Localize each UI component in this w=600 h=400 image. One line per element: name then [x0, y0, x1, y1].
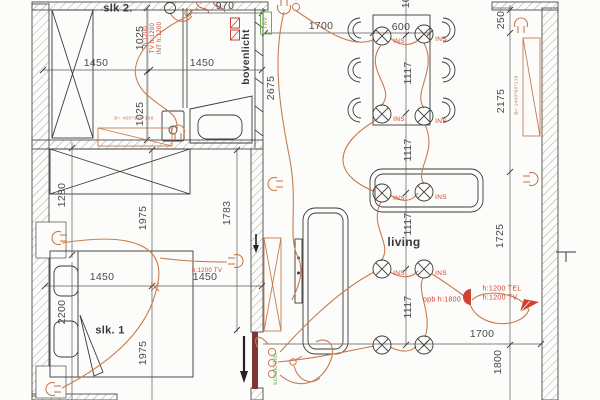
dim-1800: 1800: [493, 350, 504, 375]
convector-right: [523, 38, 540, 136]
note-tnv: TNV: [263, 17, 269, 30]
switch-corridor-top: [292, 3, 299, 10]
note-schak-dim: schak/dim: [273, 353, 280, 385]
dim-1975-a: 1975: [138, 206, 149, 231]
light-fixture-9: [373, 336, 391, 354]
dim-1700-bottom: 1700: [470, 329, 495, 340]
light-fixture-ins-3: [373, 105, 391, 123]
bovenlicht-shaft: [255, 8, 263, 148]
room-slk1-label: slk. 1: [95, 326, 124, 337]
ins-8: INS: [435, 271, 447, 278]
light-fixture-ins-5: [373, 184, 391, 202]
dim-1117-d: 1117: [403, 296, 414, 319]
electrical-cables: [62, 10, 529, 388]
wall-right: [542, 8, 558, 400]
wall-lamp-living-left: [268, 178, 283, 191]
room-living-label: living: [387, 236, 420, 248]
note-h1200-tv: h:1200 TV: [483, 295, 518, 302]
ins-7: INS: [393, 271, 405, 278]
note-slk1-tv: h:1200 TV: [192, 268, 222, 274]
dim-600: 600: [392, 22, 410, 33]
wall-lamp-top-right: [515, 18, 528, 33]
light-fixture-ins-7: [373, 260, 391, 278]
dim-1117-b: 1117: [403, 139, 414, 162]
wall-lamp-living-right: [523, 173, 538, 186]
wall-left: [32, 4, 49, 396]
ins-6: INS: [435, 195, 447, 202]
wall-middle: [32, 140, 263, 149]
dim-2175: 2175: [496, 89, 507, 114]
note-radiator-slk2: B= 400*320*149: [114, 118, 153, 123]
radiator-living: [264, 238, 281, 331]
radiators: [98, 38, 540, 331]
walls: [32, 2, 558, 400]
dim-250: 250: [496, 11, 507, 29]
dim-1450-c: 1450: [90, 272, 115, 283]
sofa-horizontal: [370, 169, 483, 212]
ins-5: INS: [393, 196, 405, 203]
dim-2200: 2200: [57, 300, 68, 325]
dim-2675: 2675: [266, 76, 277, 101]
light-fixture-ins-6: [415, 183, 433, 201]
room-slk2-label: slk 2.: [103, 4, 132, 15]
room-bovenlicht-label: bovenlicht: [241, 29, 252, 85]
note-tv-h1200: TV h:1200: [150, 23, 156, 53]
dim-1117-a: 1117: [403, 62, 414, 85]
dim-1450-a: 1450: [84, 58, 109, 69]
wall-tee-mark: [556, 252, 576, 262]
light-fixture-ins-1: [373, 27, 391, 45]
note-int-h1200: INT h:1200: [157, 22, 163, 55]
note-radiator-right: B= 1400*60*219: [516, 75, 521, 114]
entrance-door: [252, 332, 258, 389]
note-h1200-tel: h:1200 TEL: [482, 286, 521, 293]
light-fixture-10: [415, 336, 433, 354]
dim-1280: 1280: [57, 183, 68, 208]
ins-1: INS: [393, 39, 405, 46]
dim-1725: 1725: [495, 224, 506, 249]
wall-lamp-slk1-right: [228, 255, 243, 268]
bed-slk1: [50, 251, 193, 377]
wardrobe-middle: [50, 149, 190, 194]
dimension-lines: [43, 0, 541, 400]
dim-1700-top: 1700: [309, 21, 334, 32]
floor-plan: slk 2.9701025102514501450bovenlicht26751…: [0, 0, 600, 400]
wall-inner-living: [251, 149, 263, 332]
note-opb-h1800: opb h:1800: [423, 297, 461, 304]
wall-lamp-bath: [172, 125, 185, 140]
ins-3: INS: [393, 117, 405, 124]
wall-top-right: [492, 2, 558, 10]
int-socket-slk2: [231, 30, 240, 40]
dim-970: 970: [216, 1, 234, 12]
dim-1783: 1783: [222, 201, 233, 226]
wall-lamp-corridor-top: [278, 0, 291, 14]
note-h1200: h:1200: [143, 26, 149, 46]
sofa-vertical: [303, 208, 348, 354]
dim-1025-b: 1025: [135, 102, 146, 127]
dim-1025-top: 1025: [401, 0, 412, 8]
dim-1117-c: 1117: [403, 213, 414, 236]
dim-1450-b: 1450: [190, 58, 215, 69]
entrance-arrow: [240, 336, 248, 383]
wall-inner-below-door: [251, 388, 263, 400]
ins-4: INS: [435, 119, 447, 126]
tv-socket-slk2: [231, 18, 240, 28]
dim-1975-b: 1975: [138, 341, 149, 366]
ins-2: INS: [435, 37, 447, 44]
bathtub: [190, 96, 252, 143]
light-fixture-ins-8: [415, 260, 433, 278]
symbols-layer: [46, 0, 576, 395]
closet-slk2: [52, 10, 93, 138]
tel-tv-outlet: [463, 289, 471, 305]
